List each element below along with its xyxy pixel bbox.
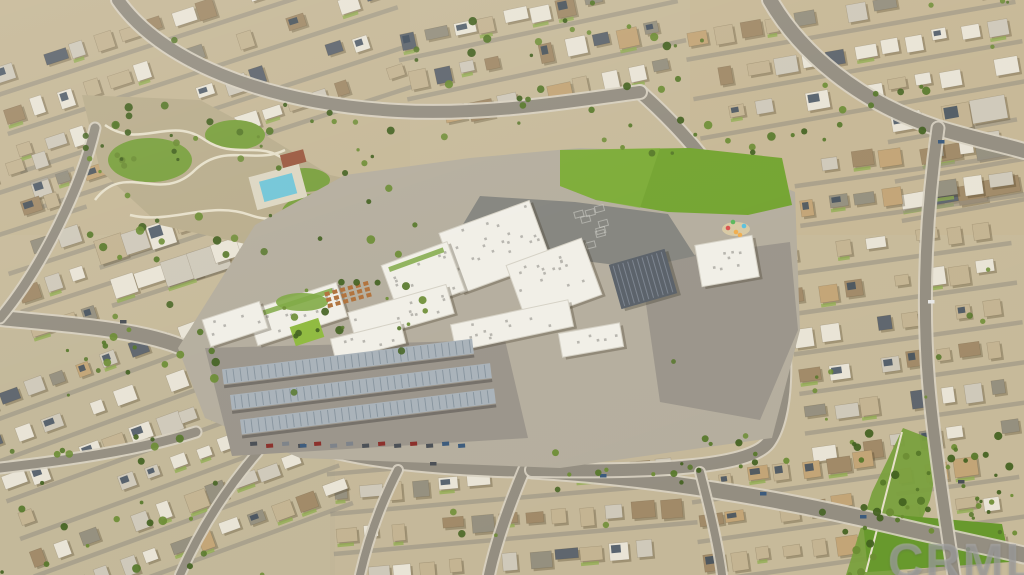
haze [0, 0, 1024, 575]
haze-overlay [0, 0, 1024, 575]
aerial-scene [0, 0, 1024, 575]
watermark: CRMLS [888, 534, 1024, 575]
aerial-photograph: CRMLS [0, 0, 1024, 575]
